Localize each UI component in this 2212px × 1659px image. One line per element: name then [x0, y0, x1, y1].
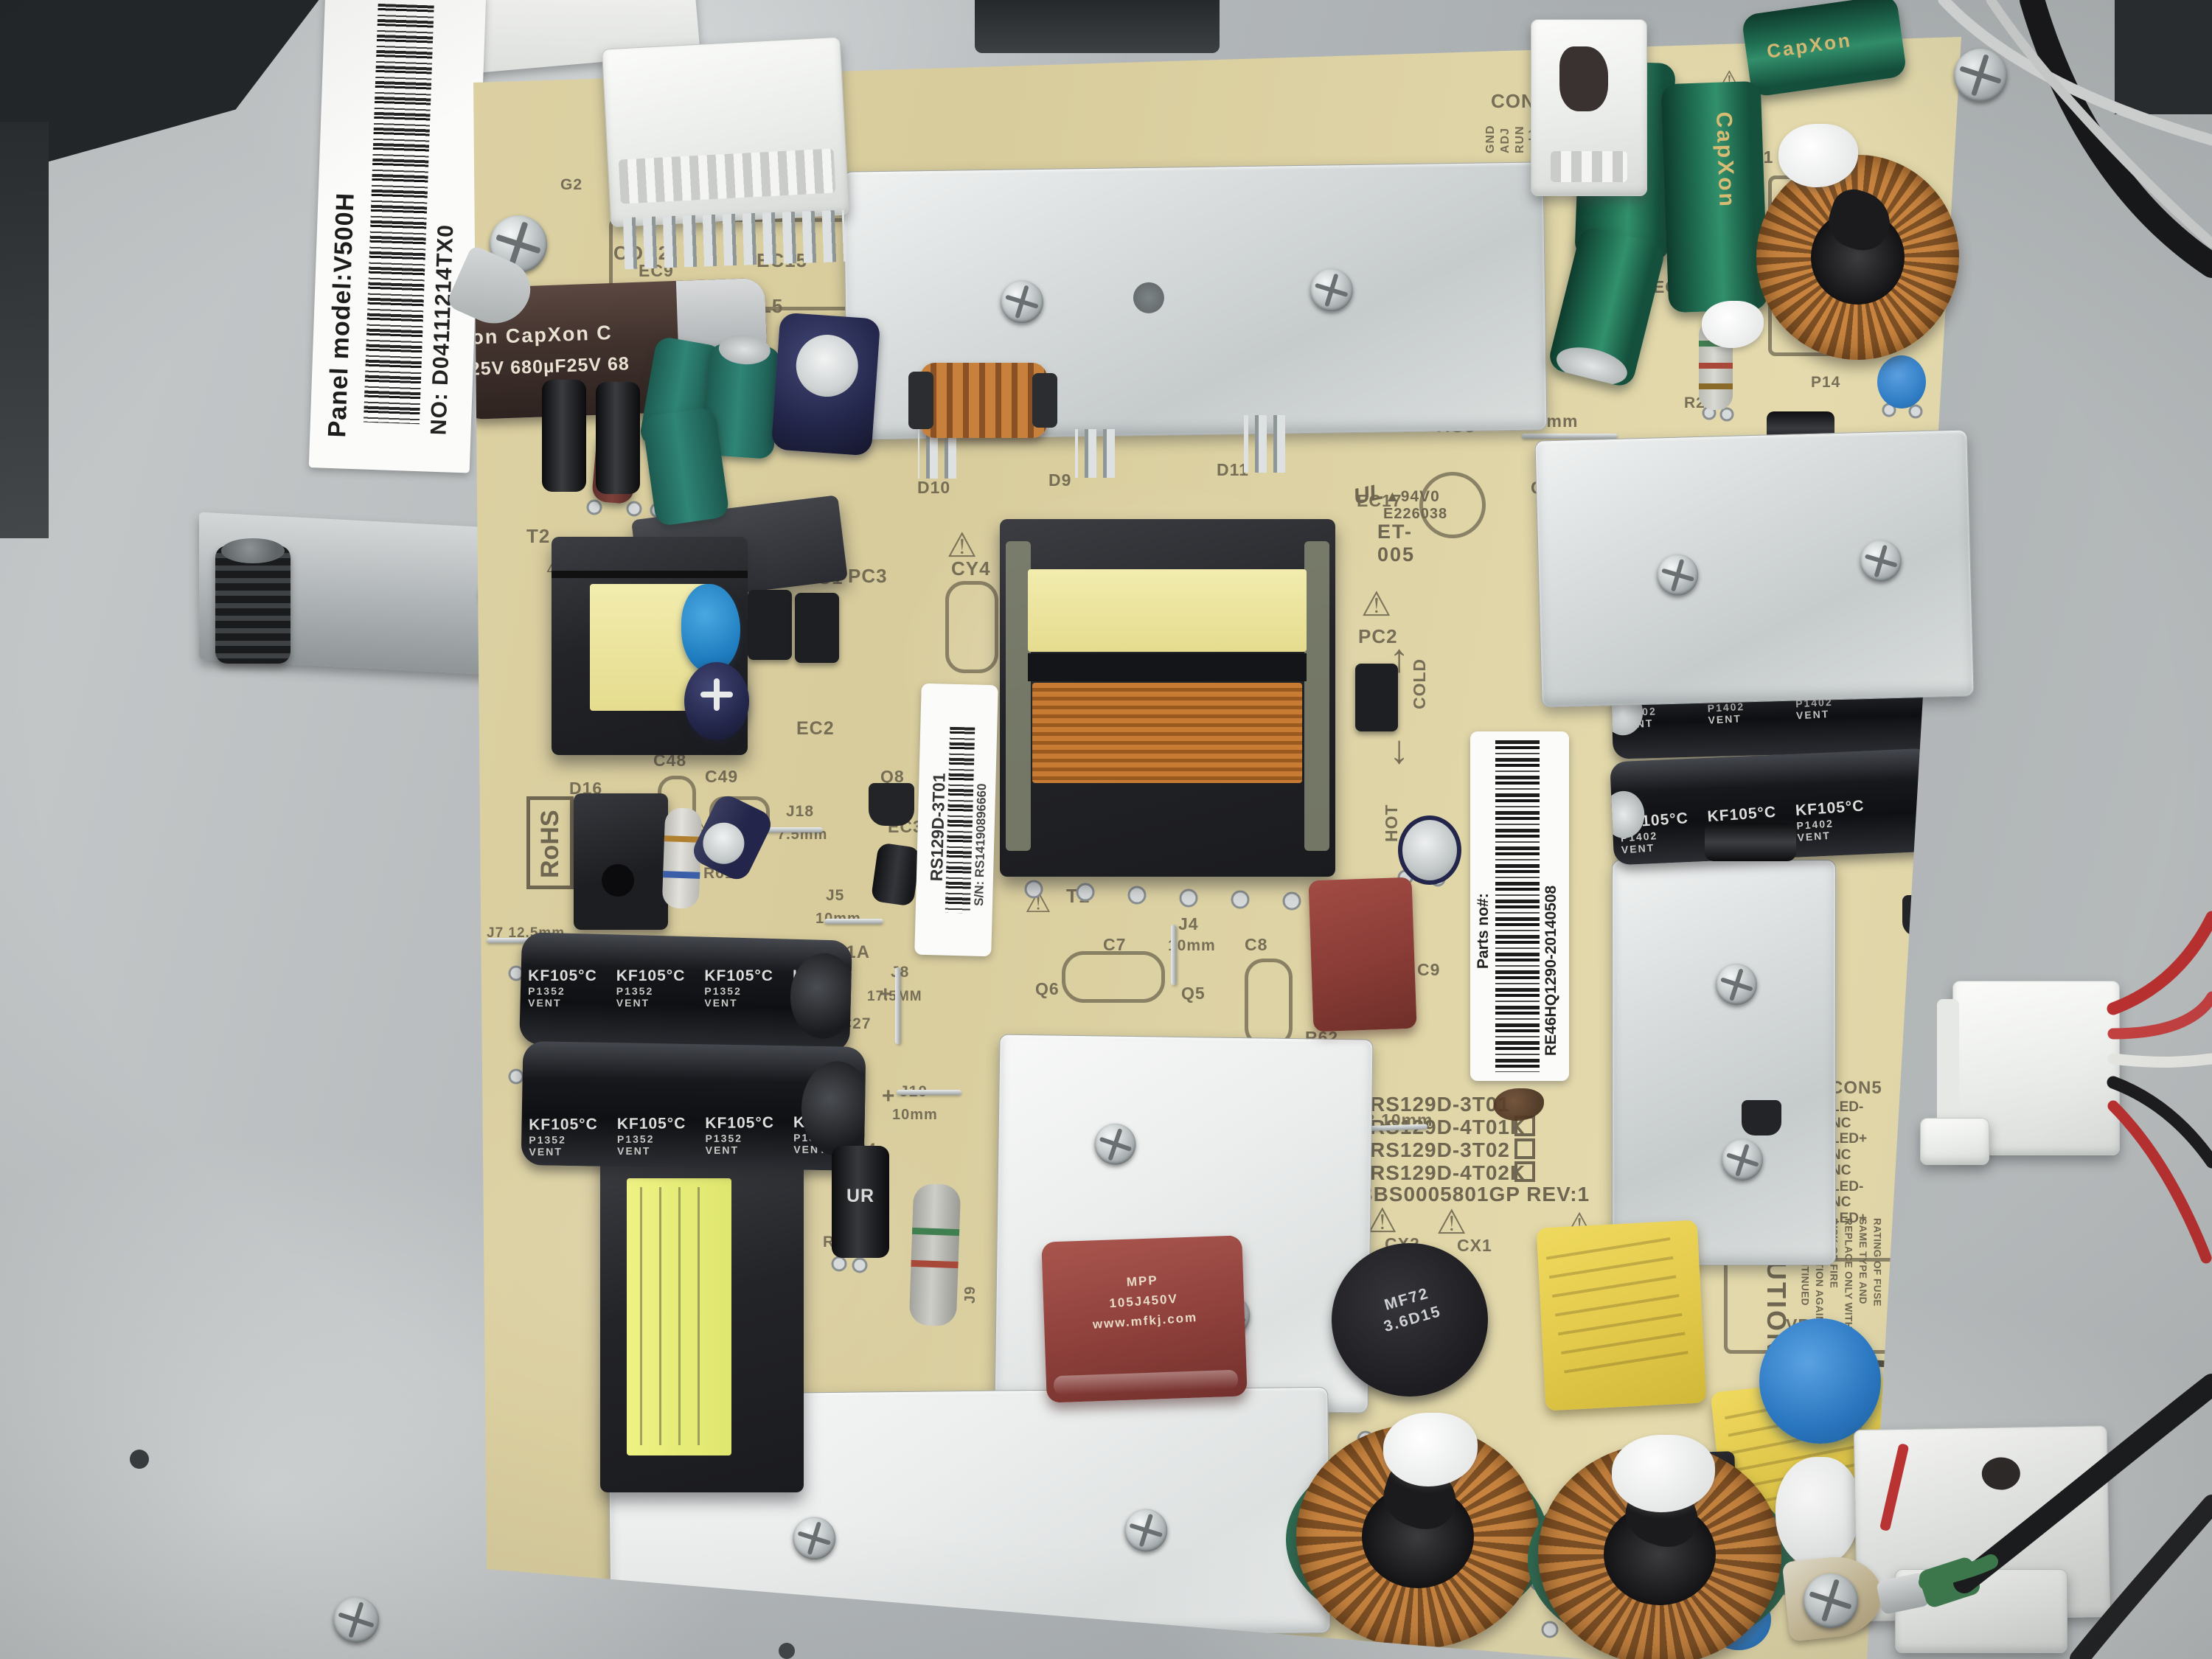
- foreground-wires: [0, 0, 2212, 1659]
- tv-psu-board-photo: Panel model:V500H NO: D04111214TX0 KB KB…: [0, 0, 2212, 1659]
